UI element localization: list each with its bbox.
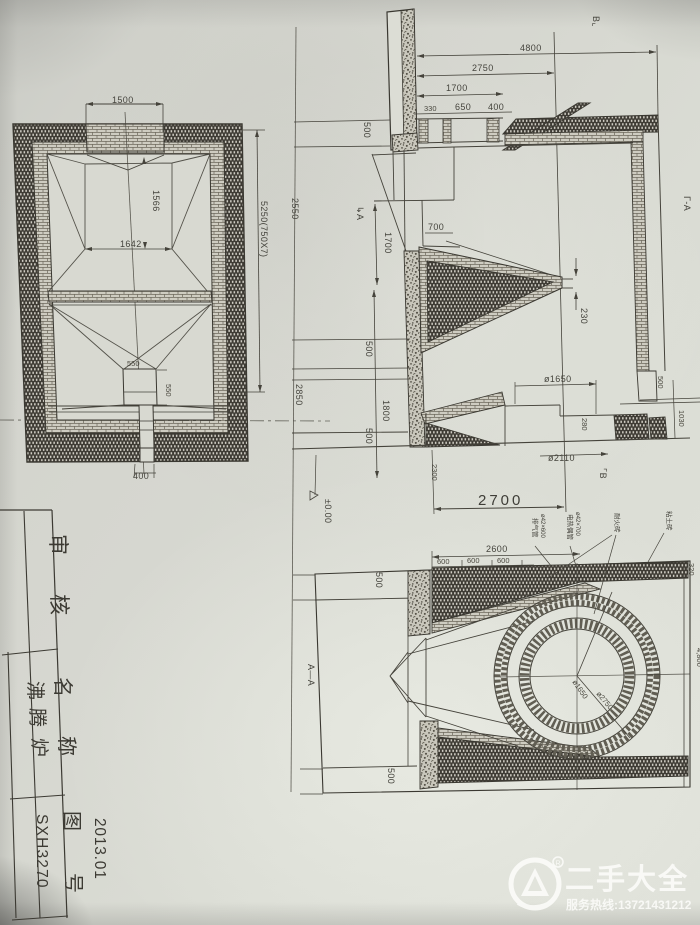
svg-text:1500: 1500 [112, 95, 134, 105]
svg-text:400: 400 [488, 102, 504, 112]
svg-text:4800: 4800 [520, 43, 542, 53]
svg-text:600: 600 [497, 556, 510, 565]
svg-text:700: 700 [428, 222, 444, 232]
svg-text:排气管: 排气管 [531, 518, 540, 538]
svg-text:400: 400 [133, 471, 149, 481]
svg-text:号: 号 [62, 873, 84, 893]
svg-text:1700: 1700 [383, 232, 393, 254]
svg-text:2013.01: 2013.01 [91, 818, 108, 880]
svg-text:电热偶管: 电热偶管 [566, 514, 575, 541]
svg-text:炉: 炉 [28, 738, 50, 757]
svg-text:500: 500 [362, 122, 372, 138]
svg-text:2700: 2700 [478, 492, 523, 509]
svg-text:名: 名 [51, 677, 74, 697]
svg-text:500: 500 [364, 341, 374, 357]
svg-text:SXH3270: SXH3270 [33, 814, 50, 889]
svg-text:审: 审 [46, 534, 69, 555]
svg-text:650: 650 [455, 102, 471, 112]
svg-text:二手大全: 二手大全 [565, 862, 689, 896]
svg-text:ø1650: ø1650 [570, 678, 590, 701]
svg-text:600: 600 [437, 557, 450, 566]
svg-text:500: 500 [656, 376, 665, 389]
svg-text:2600: 2600 [486, 544, 508, 554]
svg-text:↳A: ↳A [355, 206, 365, 220]
svg-text:R: R [556, 861, 561, 868]
svg-text:550: 550 [127, 359, 140, 368]
svg-text:600: 600 [467, 556, 480, 565]
svg-text:500: 500 [374, 572, 384, 588]
svg-text:320: 320 [687, 563, 696, 576]
svg-text:1700: 1700 [446, 83, 468, 93]
svg-text:1642: 1642 [120, 239, 142, 249]
svg-text:5250(750X7): 5250(750X7) [259, 201, 269, 257]
svg-text:A—A: A—A [306, 664, 316, 686]
svg-text:ø1650: ø1650 [544, 374, 572, 384]
svg-text:500: 500 [364, 428, 374, 444]
svg-text:550: 550 [164, 384, 173, 397]
svg-text:ø42×600: ø42×600 [539, 514, 545, 539]
svg-text:腾: 腾 [26, 708, 48, 727]
svg-text:ø2110: ø2110 [548, 453, 575, 463]
svg-text:2850: 2850 [294, 384, 304, 406]
svg-text:2750: 2750 [472, 63, 494, 73]
svg-text:Γ-A: Γ-A [682, 196, 692, 211]
svg-text:2300: 2300 [430, 464, 439, 481]
svg-text:230: 230 [579, 308, 589, 324]
svg-text:330: 330 [424, 104, 437, 113]
svg-text:1566: 1566 [151, 190, 161, 212]
svg-text:1030: 1030 [677, 410, 686, 427]
svg-text:1800: 1800 [381, 400, 391, 422]
svg-text:500: 500 [386, 768, 396, 784]
svg-text:粘土砖: 粘土砖 [665, 511, 674, 531]
svg-text:2550: 2550 [290, 198, 300, 220]
svg-text:ø42×700: ø42×700 [574, 512, 580, 537]
svg-text:280: 280 [580, 418, 589, 431]
svg-text:B⌞: B⌞ [591, 16, 601, 27]
svg-text:耐火砖: 耐火砖 [613, 513, 622, 533]
svg-text:称: 称 [55, 736, 78, 756]
svg-text:服务热线:13721431212: 服务热线:13721431212 [566, 897, 692, 912]
svg-text:±0.00: ±0.00 [323, 499, 333, 523]
svg-text:沸: 沸 [24, 681, 46, 700]
svg-text:图: 图 [60, 811, 82, 831]
svg-text:4,800: 4,800 [695, 648, 700, 667]
svg-text:⌜B: ⌜B [598, 468, 608, 479]
svg-text:核: 核 [47, 594, 70, 615]
